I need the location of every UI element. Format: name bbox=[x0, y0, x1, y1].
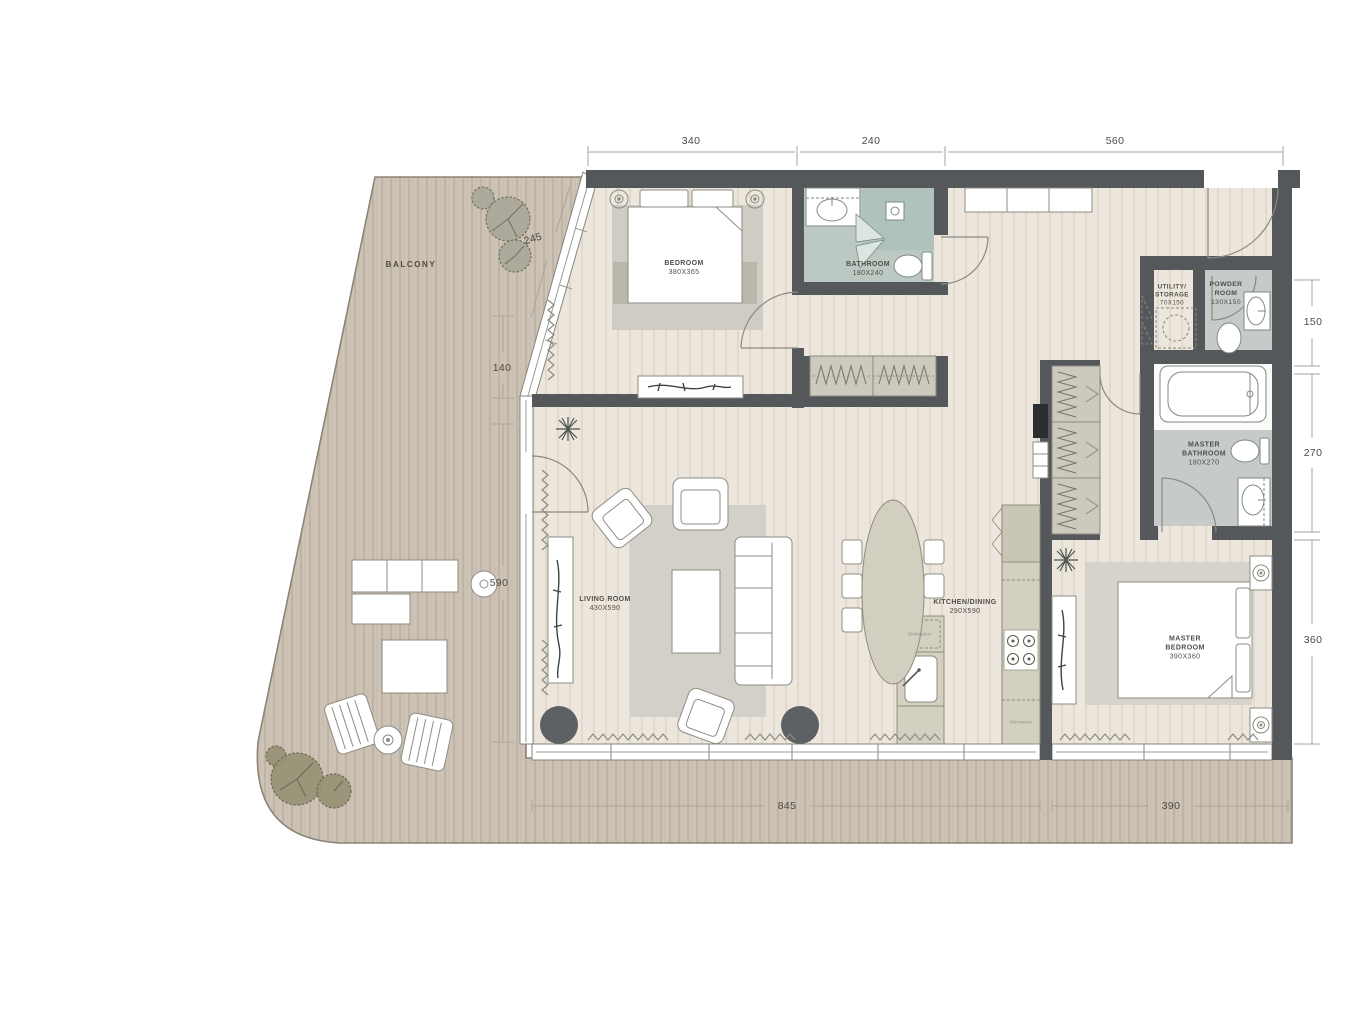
outdoor-ottoman bbox=[352, 594, 410, 624]
room-name: MASTER bbox=[1182, 440, 1226, 449]
room-name: MASTER bbox=[1165, 634, 1204, 643]
dim-right-2: 360 bbox=[1304, 634, 1322, 646]
balcony-label: BALCONY bbox=[386, 260, 437, 270]
dim-bottom-1: 390 bbox=[1162, 800, 1180, 812]
room-label-kitchen-dining: KITCHEN/DINING 290X590 bbox=[933, 598, 996, 616]
room-label-master-bedroom: MASTER BEDROOM 390X360 bbox=[1165, 634, 1204, 661]
room-name: UTILITY/ bbox=[1155, 284, 1189, 292]
room-label-powder: POWDER ROOM 130X150 bbox=[1210, 281, 1243, 307]
dim-top-2: 560 bbox=[1106, 135, 1124, 147]
room-name: BATHROOM bbox=[846, 260, 890, 269]
coffee-table bbox=[672, 570, 720, 653]
pillow bbox=[1236, 644, 1250, 692]
floor-plan-page: BALCONY BEDROOM 380X365 BATHROOM 180X240… bbox=[0, 0, 1357, 1025]
toilet-icon bbox=[894, 255, 922, 277]
appliance-label-microwave: Microwave bbox=[1010, 720, 1032, 725]
master-bath-bottom-wall bbox=[1212, 526, 1272, 540]
shower-head-icon bbox=[886, 202, 904, 220]
indoor-plant-icon bbox=[1054, 548, 1078, 572]
room-size: 70X150 bbox=[1155, 300, 1189, 308]
toilet-tank bbox=[922, 252, 932, 280]
media-console bbox=[1052, 596, 1076, 704]
toilet-icon bbox=[1217, 323, 1241, 353]
bedside-table bbox=[742, 262, 757, 304]
dim-right-0: 150 bbox=[1304, 316, 1322, 328]
master-bath-left-wall bbox=[1140, 364, 1154, 540]
dim-bottom-0: 845 bbox=[778, 800, 796, 812]
room-name: LIVING ROOM bbox=[579, 595, 630, 604]
floor-plan-drawing bbox=[0, 0, 1357, 1025]
indoor-plant-icon bbox=[556, 417, 580, 441]
dim-top-1: 240 bbox=[862, 135, 880, 147]
dining-table bbox=[862, 500, 924, 684]
outdoor-sofa bbox=[352, 560, 458, 592]
sofa bbox=[735, 537, 792, 685]
room-label-living-room: LIVING ROOM 430X590 bbox=[579, 595, 630, 613]
bed bbox=[628, 207, 742, 303]
armchair bbox=[673, 478, 728, 530]
room-size: 430X590 bbox=[579, 604, 630, 613]
room-size: 180X240 bbox=[846, 269, 890, 278]
room-name: POWDER bbox=[1210, 281, 1243, 290]
dim-balcony-2: 590 bbox=[490, 577, 508, 589]
room-size: 130X150 bbox=[1210, 298, 1243, 307]
dim-top-0: 340 bbox=[682, 135, 700, 147]
room-size: 180X270 bbox=[1182, 459, 1226, 468]
appliance-label-dishwasher: Dishwasher bbox=[908, 632, 932, 637]
room-name: STORAGE bbox=[1155, 292, 1189, 300]
bathroom-right-wall bbox=[934, 188, 948, 235]
toilet-icon bbox=[1231, 440, 1259, 462]
tv-cabinet bbox=[1033, 404, 1048, 438]
cooktop bbox=[1004, 630, 1038, 670]
utility-top-wall bbox=[1140, 256, 1272, 270]
toilet-tank bbox=[1260, 438, 1269, 464]
room-name: BATHROOM bbox=[1182, 449, 1226, 458]
room-name: BEDROOM bbox=[664, 259, 703, 268]
tv-console bbox=[548, 537, 573, 683]
bedside-table bbox=[613, 262, 628, 304]
room-label-bathroom: BATHROOM 180X240 bbox=[846, 260, 890, 278]
right-wall bbox=[1272, 188, 1292, 760]
hallway-closet bbox=[965, 188, 1092, 212]
room-size: 380X365 bbox=[664, 268, 703, 277]
room-name: BEDROOM bbox=[1165, 643, 1204, 652]
dim-balcony-1: 140 bbox=[493, 362, 511, 374]
bathroom-bottom-wall bbox=[792, 282, 948, 295]
pillow bbox=[1236, 588, 1250, 638]
fridge bbox=[1002, 505, 1040, 562]
room-label-utility: UTILITY/ STORAGE 70X150 bbox=[1155, 284, 1189, 309]
outdoor-table bbox=[382, 640, 447, 693]
dim-right-1: 270 bbox=[1304, 447, 1322, 459]
utility-powder-divider bbox=[1193, 270, 1205, 364]
room-label-master-bathroom: MASTER BATHROOM 180X270 bbox=[1182, 440, 1226, 467]
pillow bbox=[692, 190, 733, 207]
shelf-unit bbox=[1033, 442, 1048, 478]
floor-planter bbox=[540, 706, 578, 744]
top-wall bbox=[586, 170, 1204, 188]
room-label-bedroom: BEDROOM 380X365 bbox=[664, 259, 703, 277]
room-size: 290X590 bbox=[933, 607, 996, 616]
room-name: ROOM bbox=[1210, 290, 1243, 299]
hall-wardrobe bbox=[810, 356, 936, 396]
bedroom-bathroom-wall bbox=[792, 188, 804, 292]
room-size: 390X360 bbox=[1165, 653, 1204, 662]
room-name: KITCHEN/DINING bbox=[933, 598, 996, 607]
pillow bbox=[640, 190, 688, 207]
